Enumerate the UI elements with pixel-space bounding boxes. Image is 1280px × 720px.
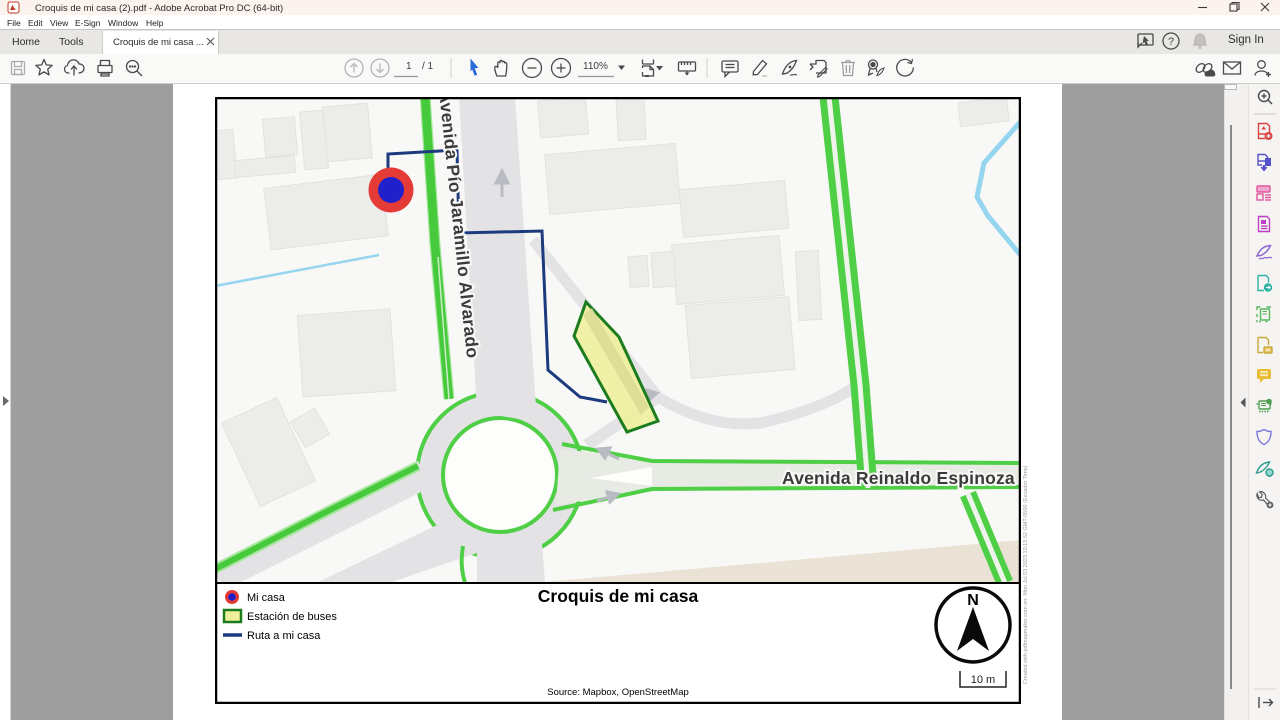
svg-text:?: ? [1168, 36, 1174, 48]
